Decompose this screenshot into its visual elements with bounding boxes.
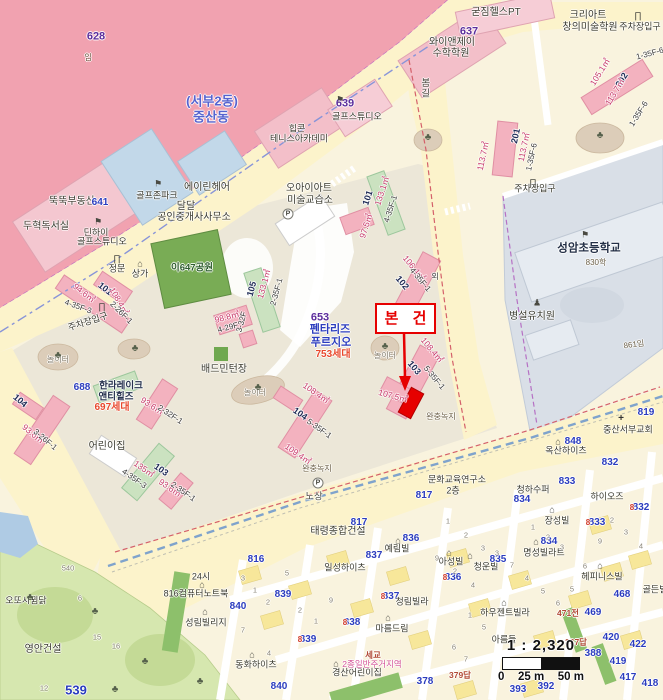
subject-arrow xyxy=(404,333,405,378)
subject-marker-box: 본 건 xyxy=(375,303,436,334)
subject-arrow-head xyxy=(399,376,411,391)
subject-marker-label: 본 건 xyxy=(385,311,432,326)
subject-arrow-layer xyxy=(0,0,663,700)
map-canvas: 628임(서부2동)중산동굳짐헬스PT크리아트창의미술학원주차장입구637와이앤… xyxy=(0,0,663,700)
